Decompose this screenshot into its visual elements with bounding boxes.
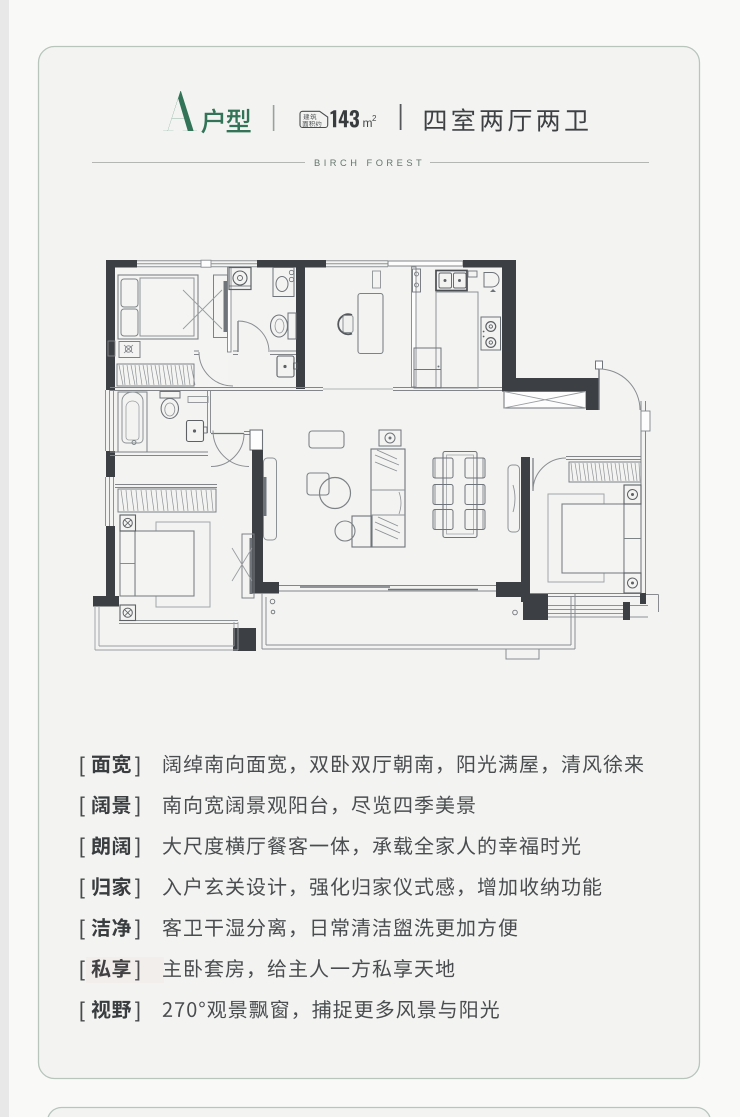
svg-text:]: ]: [135, 794, 141, 817]
svg-text:[: [: [79, 917, 85, 940]
svg-text:2: 2: [372, 114, 377, 123]
svg-text:[: [: [79, 794, 85, 817]
svg-text:]: ]: [135, 835, 141, 858]
svg-text:]: ]: [135, 917, 141, 940]
svg-text:]: ]: [135, 876, 141, 899]
svg-text:BIRCH FOREST: BIRCH FOREST: [314, 158, 425, 168]
svg-text:[: [: [79, 958, 85, 981]
svg-text:]: ]: [135, 999, 141, 1022]
svg-text:[: [: [79, 754, 85, 777]
svg-text:[: [: [79, 876, 85, 899]
svg-text:]: ]: [135, 754, 141, 777]
svg-text:m: m: [363, 116, 373, 130]
svg-text:[: [: [79, 999, 85, 1022]
svg-text:[: [: [79, 835, 85, 858]
